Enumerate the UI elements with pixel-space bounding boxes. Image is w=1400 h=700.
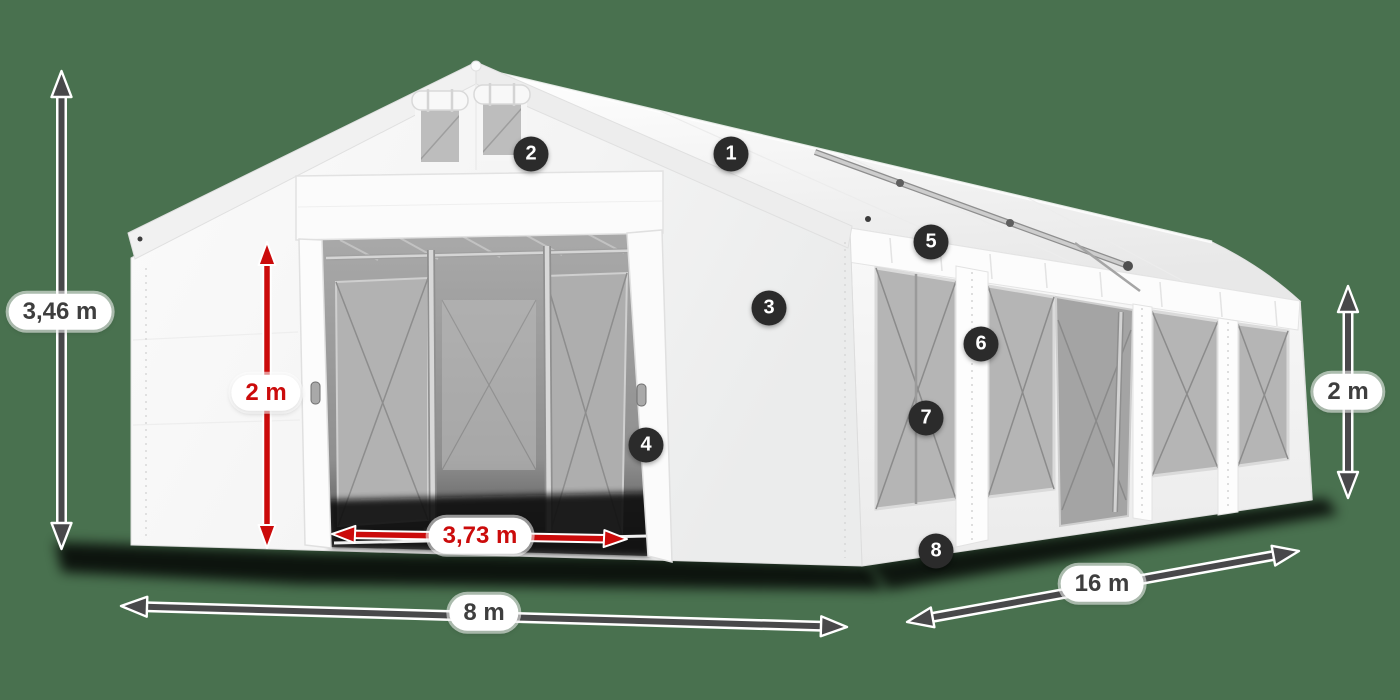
entrance-header-beam: [296, 171, 663, 240]
callout-badge-3: 3: [752, 291, 787, 326]
vent-roll-right: [474, 83, 530, 106]
side-window-3: [1152, 311, 1218, 476]
dimension-total-height-label: 3,46 m: [9, 294, 112, 330]
vent-roll-left: [412, 89, 468, 112]
dimension-side-height-label: 2 m: [1313, 374, 1382, 410]
dimension-length-label: 16 m: [1061, 566, 1144, 602]
front-entrance: [322, 233, 658, 556]
callout-badge-5: 5: [914, 225, 949, 260]
side-window-1: [876, 268, 956, 509]
interior-mesh-middle: [442, 300, 536, 470]
tent-dimension-diagram: 3,46 m 2 m 3,73 m 8 m 16 m 2 m 1 2 3 4 5…: [0, 0, 1400, 700]
callout-badge-7: 7: [909, 401, 944, 436]
side-window-4: [1238, 324, 1288, 466]
side-open-section: [1056, 297, 1133, 526]
callout-badge-1: 1: [714, 137, 749, 172]
callout-badge-2: 2: [514, 137, 549, 172]
door-handle-right: [637, 384, 646, 406]
callout-badge-4: 4: [629, 428, 664, 463]
callout-badge-8: 8: [919, 534, 954, 569]
dimension-door-height-label: 2 m: [231, 375, 300, 411]
interior-mesh-left: [336, 278, 428, 526]
side-window-2: [988, 286, 1054, 497]
door-handle-left: [311, 382, 320, 404]
callout-badge-6: 6: [964, 327, 999, 362]
dimension-front-width-label: 8 m: [449, 595, 518, 631]
dimension-door-width-label: 3,73 m: [429, 518, 532, 554]
tent-illustration: [0, 0, 1400, 700]
